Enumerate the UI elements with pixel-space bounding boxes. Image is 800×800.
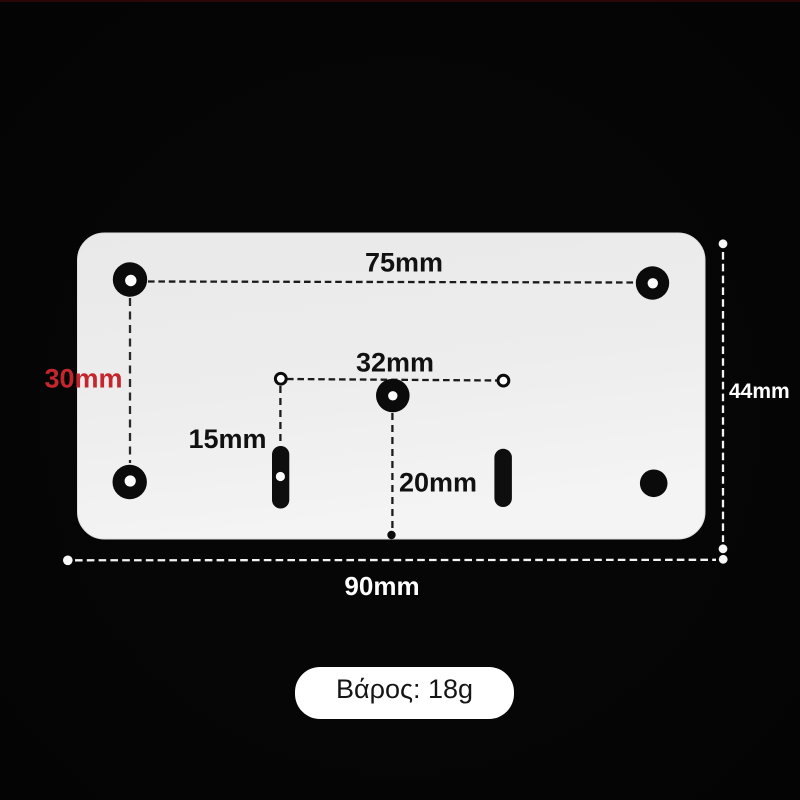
svg-text:90mm: 90mm bbox=[344, 571, 419, 601]
svg-text:15mm: 15mm bbox=[188, 424, 266, 454]
svg-text:20mm: 20mm bbox=[399, 468, 477, 498]
svg-text:32mm: 32mm bbox=[356, 348, 434, 378]
svg-text:Βάρος: 18g: Βάρος: 18g bbox=[336, 674, 473, 704]
svg-text:44mm: 44mm bbox=[729, 380, 790, 403]
svg-text:75mm: 75mm bbox=[365, 248, 443, 278]
svg-text:30mm: 30mm bbox=[44, 364, 122, 394]
